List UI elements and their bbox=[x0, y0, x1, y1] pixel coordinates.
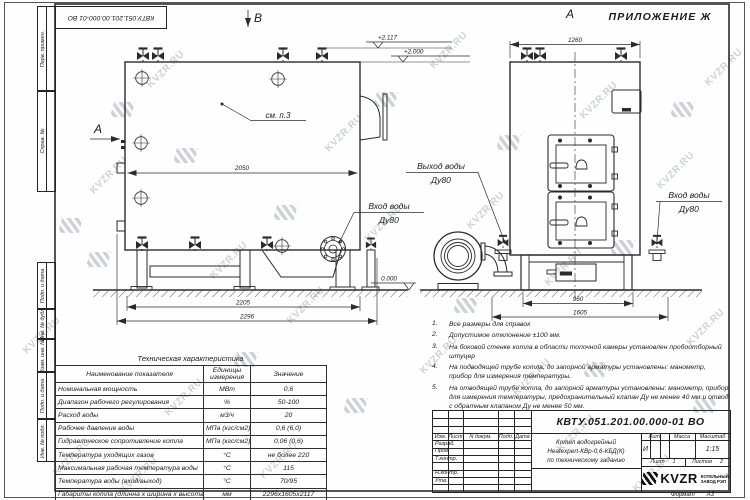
dim-2296: 2296 bbox=[239, 314, 255, 321]
document-number: КВТУ.051.201.00.000-01 ВО bbox=[531, 411, 730, 433]
skid-beam bbox=[150, 266, 240, 277]
lifting-lug-icon bbox=[273, 237, 291, 255]
water-outlet-label: Выход воды bbox=[417, 161, 466, 171]
table-row: Номинальная мощностьМВт0,6 bbox=[56, 383, 327, 396]
company-name-line2: ЗАВОД РЭП bbox=[701, 479, 729, 484]
elevation-2117: +2.117 bbox=[378, 35, 397, 42]
list-item: 4.На подводящей трубе котла, до запорной… bbox=[432, 363, 729, 382]
margin-label: Справ. № bbox=[40, 129, 46, 154]
sheets-label: Листов bbox=[692, 459, 712, 465]
furnace-door-upper bbox=[548, 135, 618, 191]
param-name: Рабочее давление воды bbox=[56, 422, 204, 435]
param-unit: °С bbox=[204, 462, 251, 475]
tech-header-unit-line2: измерения bbox=[210, 374, 244, 381]
tech-table: Наименование показателя Единицыизмерения… bbox=[55, 365, 327, 500]
sheet-value: 1 bbox=[673, 459, 676, 465]
safety-valve-icon bbox=[316, 49, 328, 63]
view-label-a: А bbox=[93, 122, 102, 136]
mass-label: Масса bbox=[669, 433, 695, 440]
margin-label: Взам. инв. № bbox=[40, 338, 46, 372]
col-docum: N докум. bbox=[463, 433, 498, 440]
company-logo-text: KVZR bbox=[660, 471, 697, 486]
param-unit: МПа (кгс/см2) bbox=[204, 435, 251, 448]
margin-box-vzam-inv: Взам. инв. № bbox=[37, 339, 56, 372]
scale-value: 1:15 bbox=[695, 440, 730, 458]
safety-valve-icon bbox=[277, 49, 289, 63]
safety-valve-icon bbox=[534, 49, 546, 63]
title-block: КВТУ.051.201.00.000-01 ВО Котел водогрей… bbox=[432, 410, 731, 493]
margin-box-inv-dubl: Инв. № дубл. bbox=[37, 309, 56, 339]
product-name-line2: Heatexpert-КВр-0,6-КБД(К) bbox=[547, 447, 624, 456]
flue-duct bbox=[360, 96, 380, 137]
list-item: 3.На боковой стенке котла в области топо… bbox=[432, 343, 729, 362]
elevation-2000: +2.000 bbox=[404, 49, 424, 56]
product-name-line3: по техническому заданию bbox=[547, 456, 625, 465]
lit-value: И bbox=[641, 440, 650, 458]
param-name: Гидравлическое сопротивление котла bbox=[56, 435, 204, 448]
list-item: 5.На отводящей трубе котла, до запорной … bbox=[432, 384, 729, 412]
product-name-line1: Котел водогрейный bbox=[556, 438, 616, 447]
table-row: Температура воды (вход/выход)°С70/95 bbox=[56, 475, 327, 488]
row-prov: Пров. bbox=[433, 448, 465, 455]
table-row: Диапазон рабочего регулирования%50-100 bbox=[56, 396, 327, 409]
water-inlet-left-dn: Ду80 bbox=[378, 215, 399, 225]
table-row: Рабочее давление водыМПа (кгс/см2)0,6 (6… bbox=[56, 422, 327, 435]
dim-1260: 1260 bbox=[568, 37, 583, 44]
notes-list: 1.Все размеры для справок 2.Допустимое о… bbox=[432, 320, 729, 414]
note-text: На боковой стенке котла в области топочн… bbox=[449, 343, 729, 362]
margin-label: Подп. и дата bbox=[40, 268, 46, 302]
note-number: 3. bbox=[432, 343, 449, 362]
scale-label: Масштаб bbox=[695, 433, 730, 440]
param-unit: % bbox=[204, 396, 251, 409]
sheets-cell: Листов 2 bbox=[685, 458, 730, 466]
margin-box-sprav-nomer: Справ. № bbox=[37, 90, 56, 192]
kvzr-logo-icon bbox=[641, 472, 659, 485]
note-number: 1. bbox=[432, 320, 449, 329]
dim-1605: 1605 bbox=[573, 310, 588, 317]
row-tkontr: Т.контр. bbox=[433, 455, 465, 462]
product-name: Котел водогрейный Heatexpert-КВр-0,6-КБД… bbox=[531, 435, 641, 468]
lit-label: Лит. bbox=[641, 433, 669, 440]
tech-header-name: Наименование показателя bbox=[56, 366, 204, 383]
flue-flange bbox=[383, 94, 387, 140]
margin-box-perv-primen: Перв. примен. bbox=[37, 6, 56, 92]
sheet-cell: Лист 1 bbox=[641, 458, 685, 466]
dim-2050: 2050 bbox=[234, 165, 250, 172]
note-number: 2. bbox=[432, 331, 449, 340]
param-unit: мм bbox=[204, 488, 251, 500]
safety-valve-icon bbox=[521, 49, 533, 63]
col-data: Дата bbox=[514, 433, 531, 440]
margin-box-inv-podl: Инв. № подл. bbox=[37, 419, 56, 462]
sheets-value: 2 bbox=[720, 459, 723, 465]
margin-label: Подп. и дата bbox=[40, 378, 46, 412]
param-unit: МВт bbox=[204, 383, 251, 396]
note-text: Все размеры для справок bbox=[449, 320, 729, 329]
format-label: Формат bbox=[671, 492, 695, 498]
appendix-title: ПРИЛОЖЕНИЕ Ж bbox=[608, 11, 711, 23]
table-row: Гидравлическое сопротивление котлаМПа (к… bbox=[56, 435, 327, 448]
drain-valve-icon bbox=[366, 239, 376, 250]
param-unit: °С bbox=[204, 475, 251, 488]
param-name: Диапазон рабочего регулирования bbox=[56, 396, 204, 409]
lifting-lug-icon bbox=[269, 70, 287, 88]
ash-hopper bbox=[262, 250, 341, 277]
tech-header-unit: Единицыизмерения bbox=[204, 366, 251, 383]
margin-label: Инв. № подл. bbox=[40, 423, 46, 457]
param-value: 0,6 bbox=[251, 383, 327, 396]
tech-header-value: Значение bbox=[251, 366, 327, 383]
param-value: 0,6 (6,0) bbox=[251, 422, 327, 435]
view-label-b: В bbox=[254, 11, 262, 25]
col-list: Лист bbox=[448, 433, 463, 440]
tech-table-header-row: Наименование показателя Единицыизмерения… bbox=[56, 366, 327, 383]
dim-2205: 2205 bbox=[235, 300, 251, 307]
boiler-side-view bbox=[117, 49, 387, 291]
format-value: А3 bbox=[707, 492, 714, 498]
company-cell: KVZR КОТЕЛЬНЫЙ ЗАВОД РЭП bbox=[641, 466, 730, 492]
safety-valve-icon bbox=[137, 49, 149, 63]
note-text: Допустимое отклонение ±100 мм. bbox=[449, 331, 729, 340]
param-value: не более 220 bbox=[251, 448, 327, 461]
water-inlet-right-dn: Ду80 bbox=[678, 204, 699, 214]
param-name: Номинальная мощность bbox=[56, 383, 204, 396]
table-row: Максимальная рабочая температура воды°С1… bbox=[56, 462, 327, 475]
top-stamp-text: КВТУ.051.201.00.000-01 ВО bbox=[68, 14, 155, 21]
company-name: КОТЕЛЬНЫЙ ЗАВОД РЭП bbox=[701, 474, 729, 484]
water-inlet-flange bbox=[321, 237, 346, 262]
sheet-label: Лист bbox=[650, 459, 664, 465]
param-name: Температура уходящих газов bbox=[56, 448, 204, 461]
margin-box-podp-data-1: Подп. и дата bbox=[37, 262, 56, 309]
skid-post bbox=[137, 250, 147, 288]
dim-960: 960 bbox=[573, 296, 584, 303]
param-unit: м3/ч bbox=[204, 409, 251, 422]
margin-label: Инв. № дубл. bbox=[40, 307, 46, 341]
view-arrows bbox=[90, 10, 248, 139]
param-value: 20 bbox=[251, 409, 327, 422]
param-name: Расход воды bbox=[56, 409, 204, 422]
elevation-ground: 0.000 bbox=[381, 276, 397, 283]
water-inlet-left-label: Вход воды bbox=[368, 201, 410, 211]
drain-valve-icon bbox=[136, 238, 148, 252]
drain-valve-icon bbox=[189, 238, 201, 252]
skid-post bbox=[240, 250, 250, 288]
tech-header-unit-line1: Единицы bbox=[213, 367, 241, 374]
row-nkontr: Н.контр. bbox=[433, 470, 465, 477]
safety-valve-icon bbox=[152, 49, 164, 63]
table-row: Расход водым3/ч20 bbox=[56, 409, 327, 422]
param-value: 0,06 (0,6) bbox=[251, 435, 327, 448]
boiler-front-view bbox=[495, 49, 665, 299]
ground-line bbox=[93, 290, 702, 297]
param-value: 115 bbox=[251, 462, 327, 475]
table-row: Габариты котла (длинна х ширина х высота… bbox=[56, 488, 327, 500]
see-note-label: см. п.3 bbox=[265, 111, 291, 120]
safety-valve-icon bbox=[615, 49, 627, 63]
list-item: 2.Допустимое отклонение ±100 мм. bbox=[432, 331, 729, 340]
table-row: Температура уходящих газов°Сне более 220 bbox=[56, 448, 327, 461]
see-note-leader bbox=[221, 103, 307, 121]
note-text: На отводящей трубе котла, до запорной ар… bbox=[449, 384, 729, 412]
drain-valve-icon bbox=[261, 238, 273, 252]
front-base bbox=[521, 255, 632, 290]
param-name: Максимальная рабочая температура воды bbox=[56, 462, 204, 475]
param-name: Габариты котла (длинна х ширина х высота… bbox=[56, 488, 204, 500]
note-number: 4. bbox=[432, 363, 449, 382]
view-label-a-front: А bbox=[565, 7, 574, 21]
param-value: 50-100 bbox=[251, 396, 327, 409]
param-unit: °С bbox=[204, 448, 251, 461]
row-utv: Утв. bbox=[433, 477, 465, 484]
tech-table-title: Техническая характеристика bbox=[55, 354, 326, 363]
col-izm: Изм. bbox=[433, 433, 448, 440]
drawing-sheet: KVZR.RU KVZR.RU KVZR.RU KVZR.RU KVZR.RU … bbox=[0, 0, 750, 500]
param-unit: МПа (кгс/см2) bbox=[204, 422, 251, 435]
water-outlet-dn: Ду80 bbox=[430, 175, 451, 185]
top-document-stamp: КВТУ.051.201.00.000-01 ВО bbox=[55, 6, 167, 29]
list-item: 1.Все размеры для справок bbox=[432, 320, 729, 329]
furnace-door-lower bbox=[548, 192, 618, 248]
lifting-lug-icon bbox=[132, 189, 150, 207]
param-value: 70/95 bbox=[251, 475, 327, 488]
note-number: 5. bbox=[432, 384, 449, 412]
margin-label: Перв. примен. bbox=[40, 31, 46, 68]
note-text: На подводящей трубе котла, до запорной а… bbox=[449, 363, 729, 382]
row-razrab: Разраб. bbox=[433, 440, 465, 447]
param-name: Температура воды (вход/выход) bbox=[56, 475, 204, 488]
param-value: 2296х1605х2117 bbox=[251, 488, 327, 500]
col-podp: Подп. bbox=[498, 433, 514, 440]
water-inlet-right-label: Вход воды bbox=[668, 190, 710, 200]
lifting-lug-icon bbox=[133, 69, 151, 87]
margin-box-podp-data-2: Подп. и дата bbox=[37, 372, 56, 419]
lifting-lug-icon bbox=[132, 134, 150, 152]
format-note: Формат А3 bbox=[645, 492, 740, 498]
